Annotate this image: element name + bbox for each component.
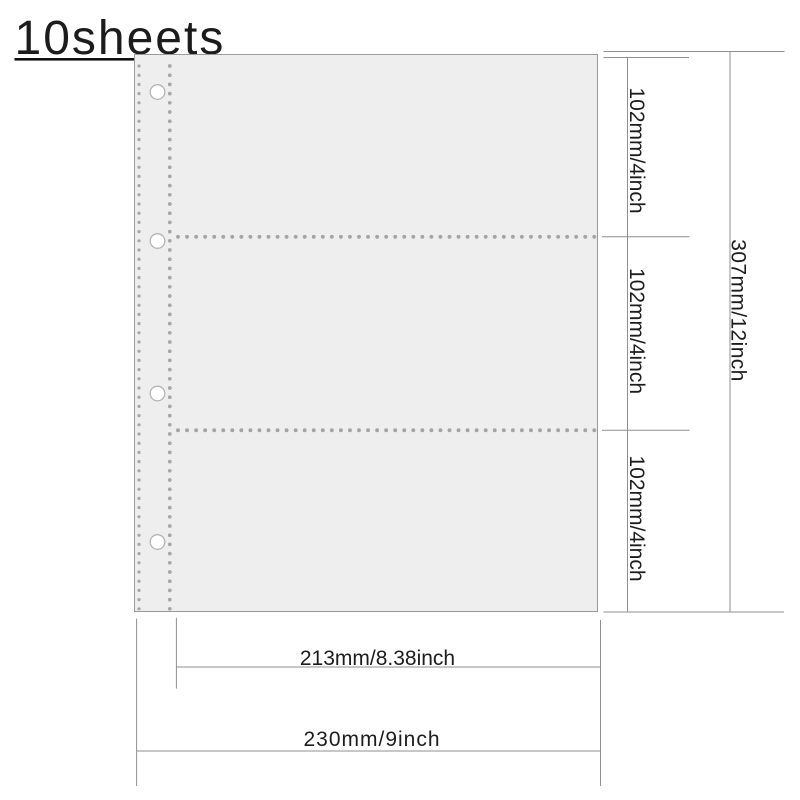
svg-text:102mm/4inch: 102mm/4inch	[625, 87, 648, 213]
svg-text:230mm/9inch: 230mm/9inch	[303, 728, 440, 751]
svg-text:307mm/12inch: 307mm/12inch	[727, 239, 750, 382]
svg-text:102mm/4inch: 102mm/4inch	[625, 268, 648, 394]
svg-text:102mm/4inch: 102mm/4inch	[625, 455, 648, 581]
svg-text:213mm/8.38inch: 213mm/8.38inch	[300, 647, 455, 670]
